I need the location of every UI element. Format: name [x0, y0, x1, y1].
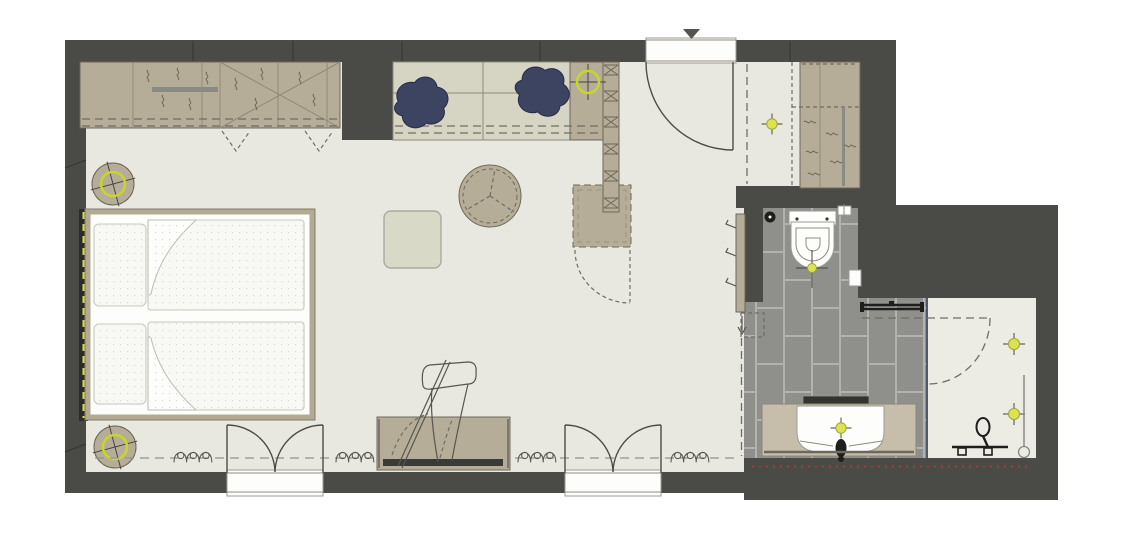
entrance-door-opening — [646, 38, 736, 63]
shelf-column — [603, 62, 619, 212]
wall-bottom-c — [660, 472, 757, 493]
toilet-light — [808, 264, 817, 273]
wardrobe-rail — [152, 87, 218, 92]
wall-bottom-b — [322, 472, 566, 493]
wall-bathroom-block-a — [858, 186, 896, 298]
square-pouf — [384, 211, 441, 268]
floor-plan-canvas — [0, 0, 1123, 535]
wall-entry-right — [860, 40, 896, 208]
wardrobe-body — [80, 62, 340, 128]
floor-plan — [0, 0, 1123, 535]
wall-bottom-a — [65, 472, 228, 493]
wall-bathroom-block-b — [896, 205, 1058, 298]
entry-closet-rail — [842, 108, 845, 186]
wall-shower-right — [1036, 298, 1058, 460]
wall-bathroom-left — [744, 186, 763, 302]
entry-closet — [800, 62, 860, 188]
shower-floor — [928, 298, 1036, 458]
mirror — [803, 396, 869, 404]
wall-notch-desk — [342, 40, 394, 140]
faucet-icon — [836, 439, 847, 457]
flush-panel — [849, 270, 861, 286]
wall-bathroom-bottom — [744, 458, 1058, 500]
vanity — [762, 404, 916, 462]
toilet-paper-holder — [838, 204, 851, 217]
minibar-cabinet — [573, 185, 631, 247]
